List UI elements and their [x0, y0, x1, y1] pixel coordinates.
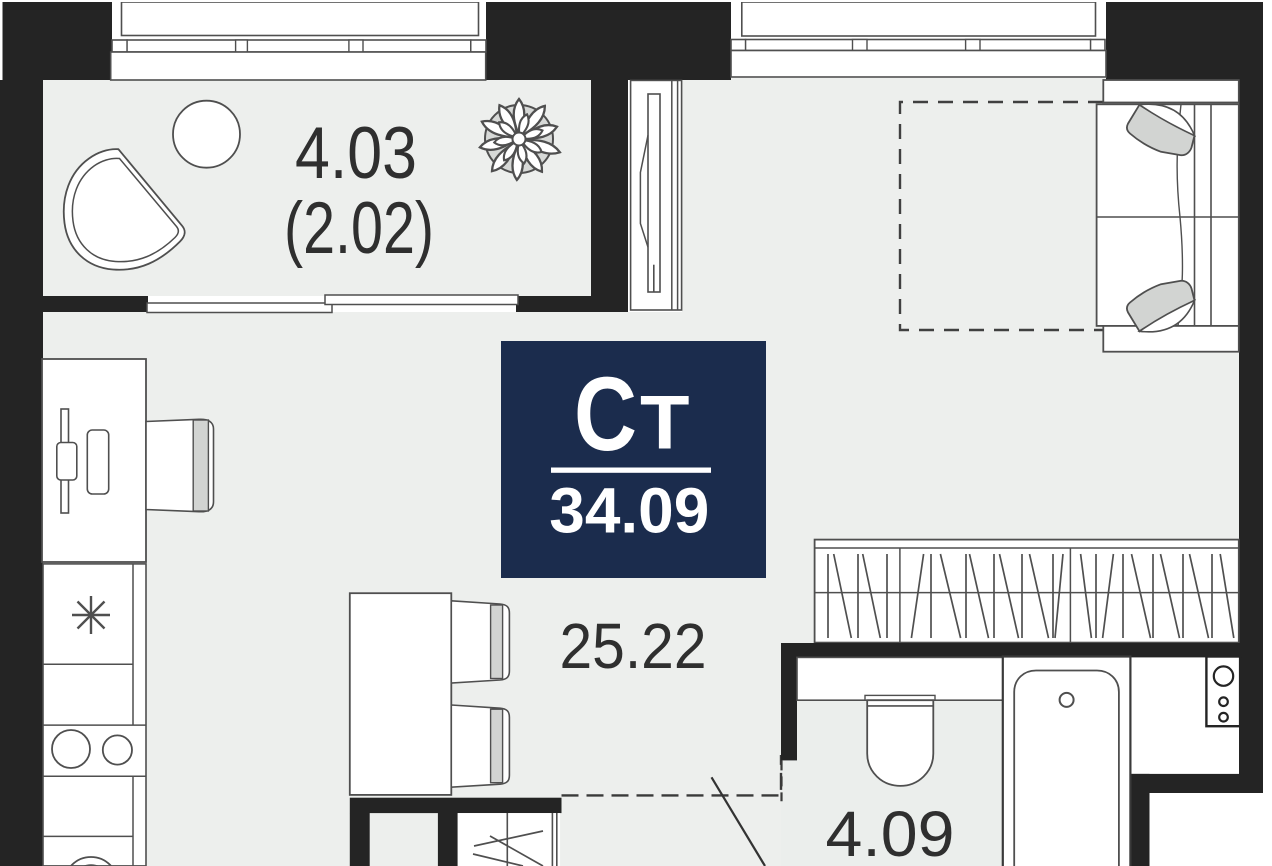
svg-text:4.09: 4.09 [826, 798, 955, 866]
svg-text:25.22: 25.22 [560, 610, 707, 682]
svg-text:4.03: 4.03 [295, 113, 417, 194]
svg-text:Т: Т [640, 381, 690, 466]
svg-text:С: С [574, 356, 637, 473]
svg-text:34.09: 34.09 [549, 475, 709, 547]
svg-text:(2.02): (2.02) [284, 188, 434, 269]
